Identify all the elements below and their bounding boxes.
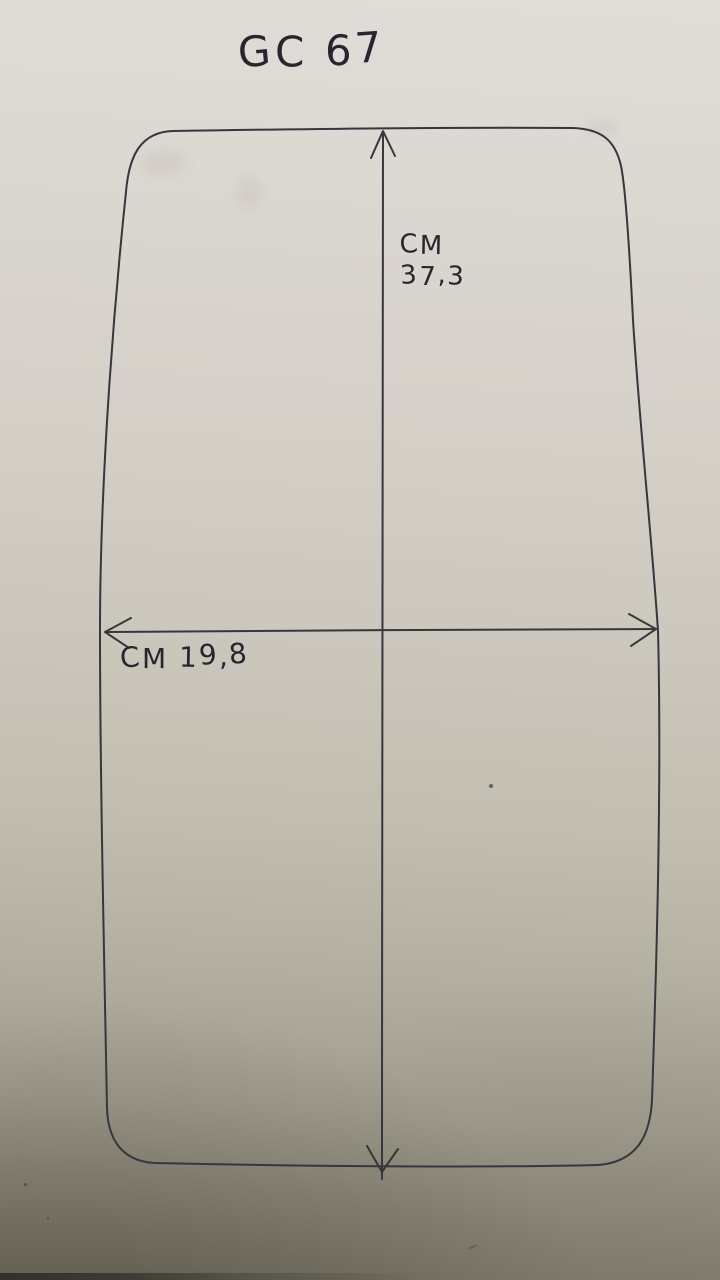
width-dimension-label: CM 19,8	[119, 638, 249, 675]
height-dimension-unit: CM	[399, 229, 465, 261]
sketch-title: GC 67	[237, 23, 387, 77]
vertical-dimension-line	[382, 132, 383, 1179]
horizontal-dimension-line	[106, 629, 656, 632]
sketch-drawing	[0, 0, 720, 1280]
height-dimension-label: CM 37,3	[399, 229, 466, 292]
height-dimension-value: 37,3	[400, 260, 466, 292]
whiteboard-photo: GC 67 CM 37,3 CM 19,8	[0, 0, 720, 1280]
